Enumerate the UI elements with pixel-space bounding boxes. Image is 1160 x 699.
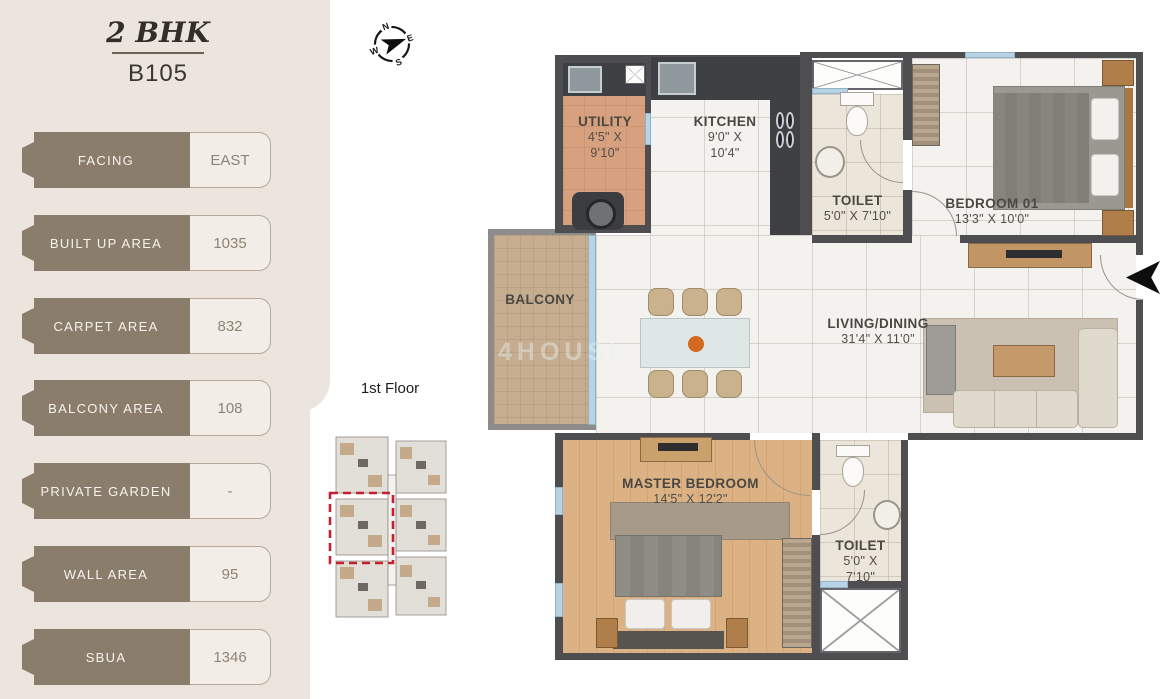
room-label-living: LIVING/DINING 31'4" X 11'0" [783,316,973,348]
dining-chair [682,288,708,316]
wall [908,433,1143,440]
spec-label: PRIVATE GARDEN [22,463,190,519]
room-label-balcony: BALCONY [492,292,588,308]
wall [812,235,912,243]
spec-row-facing: FACING EAST [22,132,271,188]
wall [800,52,812,235]
wall [555,433,563,660]
spec-value: 832 [190,298,271,354]
blanket [993,93,1089,203]
coffee-table [993,345,1055,377]
window-bedroom01 [965,52,1015,58]
utility-sink [568,66,602,93]
pillow [1091,98,1119,140]
tv-console-living [968,243,1092,268]
room-label-master: MASTER BEDROOM 14'5" X 12'2" [593,476,788,508]
tv [658,443,698,451]
room-label-toilet2: TOILET 5'0" X 7'10" [820,538,901,585]
nightstand [596,618,618,648]
wall [1136,58,1143,255]
dining-table [640,318,750,368]
toilet-bowl [846,106,868,136]
spec-label: FACING [22,132,190,188]
wardrobe-bedroom01 [912,64,940,146]
bed-bedroom01 [993,86,1133,210]
spec-value: EAST [190,132,271,188]
balcony-floor [488,229,596,430]
spec-value: 95 [190,546,271,602]
washing-machine-drum [586,199,616,229]
bed-master [615,535,725,650]
floor-plan-canvas: 4HOUSI UTILITY 4'5" X 9'10" KITCHEN 9'0"… [488,50,1160,699]
spec-label: WALL AREA [22,546,190,602]
nightstand [1102,60,1134,86]
toilet-bowl [842,457,864,487]
duct-shaft-top [812,60,903,90]
wall [555,653,908,660]
spec-label: SBUA [22,629,190,685]
tv [1006,250,1062,258]
wall [812,535,820,660]
spec-value: 1346 [190,629,271,685]
table-centerpiece [688,336,704,352]
washing-machine [572,192,624,230]
washbasin [815,146,845,178]
dining-chair [682,370,708,398]
room-label-utility: UTILITY 4'5" X 9'10" [563,114,647,161]
tv-console-master [640,437,712,462]
unit-number: B105 [60,60,256,88]
toilet-tank [840,92,874,106]
spec-label: BUILT UP AREA [22,215,190,271]
floor-label: 1st Floor [328,380,452,397]
sofa [953,390,1078,428]
spec-value: 1035 [190,215,271,271]
wall [812,433,820,490]
utility-duct [625,65,645,84]
wall [960,235,1143,243]
pillow [1091,154,1119,196]
compass-icon: N E S W [364,16,420,72]
wall [555,55,563,233]
spec-row-private-garden: PRIVATE GARDEN - [22,463,271,519]
spec-value: 108 [190,380,271,436]
mini-floor-plate[interactable] [328,435,458,623]
wall [1136,300,1143,440]
headboard [1125,88,1133,208]
spec-label: CARPET AREA [22,298,190,354]
washbasin [873,500,901,530]
wall [903,52,912,140]
nightstand [726,618,748,648]
spec-row-sbua: SBUA 1346 [22,629,271,685]
pillow [671,599,711,629]
nightstand [1102,210,1134,236]
dining-chair [648,288,674,316]
dining-chair [716,370,742,398]
kitchen-sink [658,62,696,95]
room-label-kitchen: KITCHEN 9'0" X 10'4" [650,114,800,161]
title-underline [112,52,204,54]
spec-label: BALCONY AREA [22,380,190,436]
blanket [615,535,722,597]
room-label-toilet1: TOILET 5'0" X 7'10" [812,193,903,225]
window-master-1 [555,487,563,515]
wardrobe-master [782,538,812,648]
spec-row-built-up-area: BUILT UP AREA 1035 [22,215,271,271]
toilet-tank [836,445,870,457]
headboard [613,631,724,649]
wall [903,190,912,235]
sofa-chaise [1078,328,1118,428]
wall [901,440,908,660]
unit-type-title: 2 BHK [60,16,256,49]
room-label-bedroom01: BEDROOM 01 13'3" X 10'0" [912,196,1072,228]
pillow [625,599,665,629]
window-master-2 [555,583,563,617]
spec-value: - [190,463,271,519]
watermark: 4HOUSI [498,338,621,367]
spec-row-carpet-area: CARPET AREA 832 [22,298,271,354]
dining-chair [648,370,674,398]
duct-shaft-bottom [820,588,901,653]
balcony-sliding-door [588,235,596,425]
spec-row-balcony-area: BALCONY AREA 108 [22,380,271,436]
floor-plan-page: { "header": { "bhk": "2 BHK", "unit": "B… [0,0,1160,699]
spec-row-wall-area: WALL AREA 95 [22,546,271,602]
dining-chair [716,288,742,316]
